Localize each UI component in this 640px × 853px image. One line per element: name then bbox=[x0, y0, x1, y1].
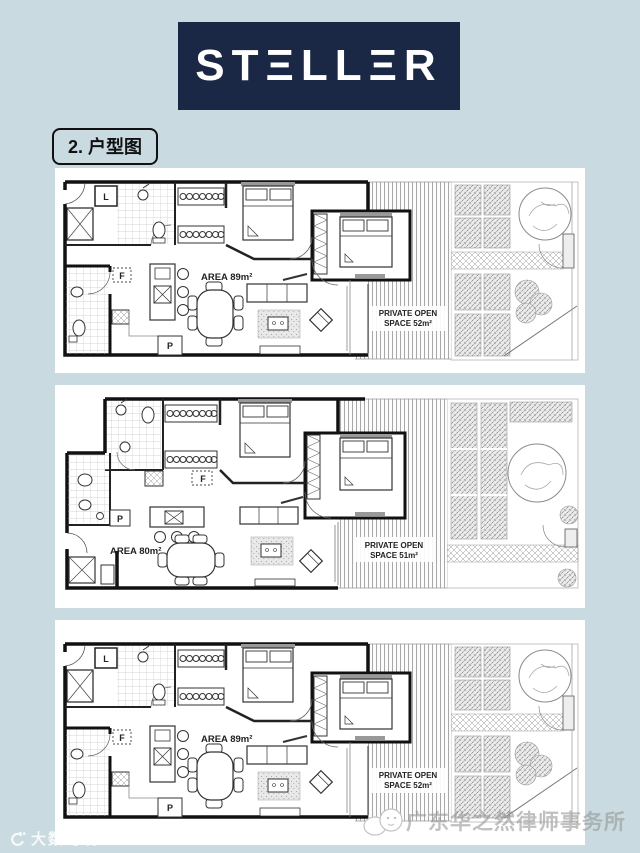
entry-porch bbox=[69, 557, 114, 584]
pantry-letter: P bbox=[167, 803, 173, 813]
basin bbox=[79, 500, 91, 510]
fridge-letter: F bbox=[119, 271, 125, 281]
tv-unit bbox=[355, 512, 385, 516]
sofa bbox=[240, 507, 298, 524]
watermark-left: 大数跨境 bbox=[8, 828, 99, 849]
watermark-right-icon bbox=[362, 804, 404, 838]
watermark-right: 广东华之然律师事务所 bbox=[362, 804, 626, 838]
open-space-label-line1: PRIVATE OPEN bbox=[379, 309, 438, 318]
toilet bbox=[78, 474, 92, 486]
garden-area bbox=[447, 399, 578, 588]
open-space-label-line1: PRIVATE OPEN bbox=[365, 541, 424, 550]
area-label: AREA 89m² bbox=[201, 734, 252, 745]
section-label: 2. 户型图 bbox=[52, 128, 158, 165]
open-space-label-line2: SPACE 52m² bbox=[384, 781, 432, 790]
laundry-letter: L bbox=[103, 192, 109, 202]
coffee-table bbox=[261, 544, 281, 557]
pantry-letter: P bbox=[167, 341, 173, 351]
open-space-label-line2: SPACE 52m² bbox=[384, 319, 432, 328]
section-title: 2. 户型图 bbox=[68, 137, 142, 157]
open-space-label-line1: PRIVATE OPEN bbox=[379, 771, 438, 780]
area-label: AREA 89m² bbox=[201, 272, 252, 283]
fridge-letter: F bbox=[200, 474, 206, 484]
floorplan-panel-1: L F P AREA 89m² PRIVATE OPEN SPACE 52m² bbox=[55, 168, 585, 373]
pantry-letter: P bbox=[117, 514, 123, 524]
fridge-letter: F bbox=[119, 733, 125, 743]
steller-logo: STΞLLΞR bbox=[178, 22, 460, 110]
stool bbox=[155, 532, 166, 543]
laundry-letter: L bbox=[103, 654, 109, 664]
basin bbox=[116, 405, 126, 415]
garden-path bbox=[447, 545, 578, 562]
ensuite bbox=[67, 453, 110, 525]
area-label: AREA 80m² bbox=[110, 546, 161, 557]
watermark-left-icon bbox=[8, 830, 26, 848]
bathroom-main bbox=[105, 399, 163, 470]
garden-gate bbox=[565, 529, 577, 547]
open-space-label-line2: SPACE 51m² bbox=[370, 551, 418, 560]
dining-table bbox=[167, 543, 215, 577]
toilet bbox=[142, 407, 154, 423]
page-background: STΞLLΞR 2. 户型图 L F P AREA 89m² PRIVATE O… bbox=[0, 0, 640, 853]
watermark-right-text: 广东华之然律师事务所 bbox=[406, 806, 626, 836]
logo-text: STΞLLΞR bbox=[195, 44, 442, 88]
watermark-left-text: 大数跨境 bbox=[31, 828, 99, 849]
floorplan-panel-2: F P AREA 80m² PRIVATE OPEN SPACE 51m² bbox=[55, 385, 585, 608]
large-tree bbox=[508, 444, 566, 502]
